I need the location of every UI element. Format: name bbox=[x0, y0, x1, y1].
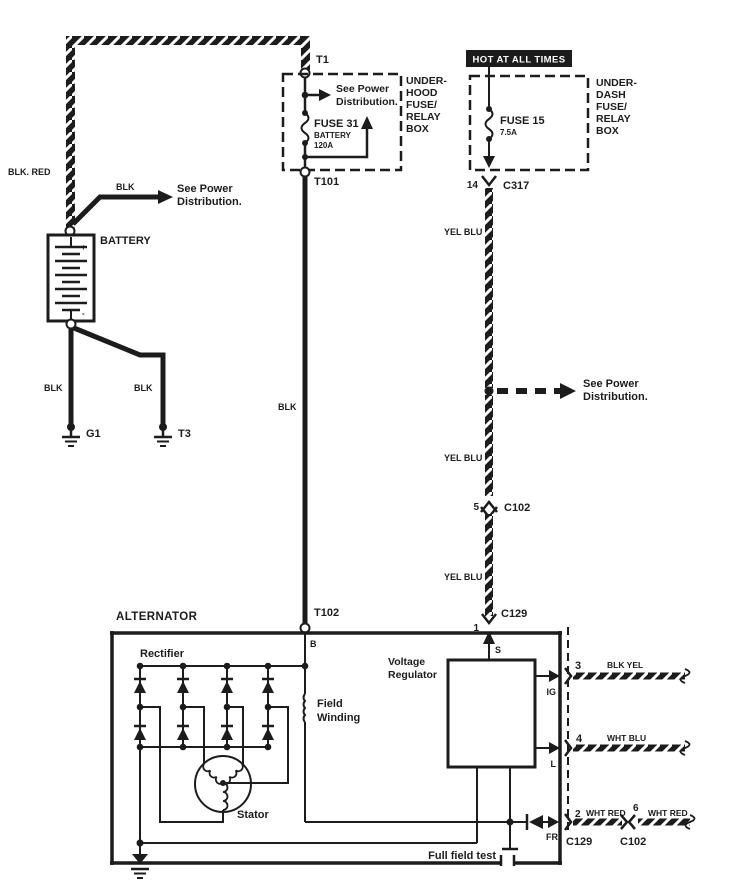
battery-neg-terminal bbox=[67, 320, 76, 329]
label-blk-t3: BLK bbox=[134, 383, 153, 393]
output-pigtails: 3 BLK YEL 4 WHT BLU 2 WHT RED C129 6 WHT… bbox=[565, 627, 695, 848]
svg-text:HOOD: HOOD bbox=[406, 87, 438, 99]
label-terminal-l: L bbox=[551, 759, 557, 769]
feed-wire-left bbox=[66, 36, 75, 232]
svg-text:BOX: BOX bbox=[596, 125, 619, 137]
underdash-box-name: UNDER- DASH FUSE/ RELAY BOX bbox=[596, 77, 637, 137]
diode-icon bbox=[529, 815, 543, 829]
svg-text:BOX: BOX bbox=[406, 123, 429, 135]
label-branch-blk: BLK bbox=[116, 182, 135, 192]
wire-blk-yel bbox=[573, 673, 685, 680]
label-t101: T101 bbox=[314, 176, 339, 188]
label-winding: Winding bbox=[317, 712, 360, 724]
arrow-up-icon bbox=[361, 116, 373, 129]
label-see-power-3a: See Power bbox=[583, 378, 639, 390]
yel-blu-wire-2 bbox=[485, 395, 493, 496]
label-pin-5: 5 bbox=[473, 502, 479, 513]
label-wht-blu: WHT BLU bbox=[607, 733, 646, 743]
svg-text:UNDER-: UNDER- bbox=[406, 75, 447, 87]
charging-system-diagram: BLK. RED BLK See Power Distribution. + -… bbox=[0, 0, 747, 887]
feed-wire-top bbox=[66, 36, 310, 45]
label-c102: C102 bbox=[504, 502, 530, 514]
battery-plus-mark: + bbox=[81, 243, 86, 252]
label-g1: G1 bbox=[86, 428, 101, 440]
label-see-power-2b: Distribution. bbox=[336, 96, 398, 108]
svg-text:RELAY: RELAY bbox=[406, 111, 441, 123]
feed-wire-t1-drop bbox=[301, 36, 310, 70]
terminal-t102 bbox=[301, 624, 310, 633]
arrow-right-icon bbox=[319, 89, 331, 101]
label-blk-g1: BLK bbox=[44, 383, 63, 393]
label-stator: Stator bbox=[237, 809, 270, 821]
label-blk-red: BLK. RED bbox=[8, 167, 51, 177]
label-fuse-31-rating: 120A bbox=[314, 141, 333, 150]
fuse-31-element bbox=[302, 113, 309, 143]
label-blk-yel: BLK YEL bbox=[607, 660, 643, 670]
connector-c317-icon bbox=[482, 176, 496, 185]
label-battery: BATTERY bbox=[100, 235, 151, 247]
battery-branch-wire bbox=[73, 197, 158, 224]
label-yel-blu-1: YEL BLU bbox=[444, 227, 482, 237]
field-winding-coil bbox=[304, 694, 305, 722]
underdash-fuse-box: HOT AT ALL TIMES FUSE 15 7.5A UNDER- DAS… bbox=[466, 50, 637, 192]
label-fuse-31-circuit: BATTERY bbox=[314, 131, 352, 140]
label-blk-center: BLK bbox=[278, 402, 297, 412]
ground-symbol-t3 bbox=[154, 423, 172, 446]
label-fuse-15-rating: 7.5A bbox=[500, 128, 517, 137]
svg-text:RELAY: RELAY bbox=[596, 113, 631, 125]
svg-text:FUSE/: FUSE/ bbox=[406, 99, 437, 111]
arrow-right-icon bbox=[548, 816, 559, 828]
arrow-right-icon bbox=[560, 383, 576, 399]
label-pin-14: 14 bbox=[467, 180, 479, 191]
wire-wht-red-a bbox=[573, 819, 622, 826]
label-yel-blu-2: YEL BLU bbox=[444, 453, 482, 463]
connector-pin3-icon bbox=[565, 668, 571, 684]
label-see-power-3b: Distribution. bbox=[583, 391, 648, 403]
fuse-15-element bbox=[486, 109, 493, 139]
fr-circuit: FR bbox=[305, 814, 559, 842]
voltage-regulator: Voltage Regulator S IG L bbox=[388, 631, 560, 849]
label-pin-6: 6 bbox=[633, 803, 639, 814]
label-fuse-15: FUSE 15 bbox=[500, 115, 545, 127]
label-terminal-s: S bbox=[495, 645, 501, 655]
label-voltage: Voltage bbox=[388, 656, 425, 668]
label-fuse-31: FUSE 31 bbox=[314, 118, 359, 130]
label-regulator: Regulator bbox=[388, 669, 437, 681]
connector-c102-out-icon-right bbox=[629, 815, 635, 829]
wire-wht-blu bbox=[573, 745, 685, 752]
label-terminal-b: B bbox=[310, 639, 317, 649]
label-c317: C317 bbox=[503, 180, 529, 192]
label-c129-out: C129 bbox=[566, 836, 592, 848]
label-t3: T3 bbox=[178, 428, 191, 440]
voltage-regulator-box bbox=[448, 660, 535, 767]
label-see-power-1b: Distribution. bbox=[177, 196, 242, 208]
label-pin-4: 4 bbox=[576, 733, 583, 745]
arrow-right-icon bbox=[158, 190, 173, 204]
ground-symbol-g1 bbox=[62, 423, 80, 446]
yel-blu-wire-3 bbox=[485, 514, 493, 616]
stator: Stator bbox=[195, 756, 270, 821]
label-terminal-ig: IG bbox=[546, 687, 556, 697]
wire-wht-red-b bbox=[638, 819, 690, 826]
svg-text:FUSE/: FUSE/ bbox=[596, 101, 627, 113]
label-wht-red-a: WHT RED bbox=[586, 808, 626, 818]
battery-section: BLK See Power Distribution. + - BATTERY … bbox=[44, 182, 242, 446]
label-hot-at-all-times: HOT AT ALL TIMES bbox=[473, 55, 566, 66]
alternator: ALTERNATOR B Field Winding Rectifier bbox=[110, 611, 562, 878]
stator-winding-upper-left bbox=[203, 764, 223, 784]
battery-minus-mark: - bbox=[82, 309, 85, 318]
label-field: Field bbox=[317, 698, 343, 710]
label-see-power-2a: See Power bbox=[336, 83, 389, 95]
label-c102-out: C102 bbox=[620, 836, 646, 848]
ground-wire-t3 bbox=[74, 328, 163, 424]
center-harness: BLK T102 bbox=[278, 177, 339, 633]
label-c129: C129 bbox=[501, 608, 527, 620]
stator-winding-bottom bbox=[223, 783, 228, 810]
label-yel-blu-3: YEL BLU bbox=[444, 572, 482, 582]
svg-text:DASH: DASH bbox=[596, 89, 626, 101]
label-t102: T102 bbox=[314, 607, 339, 619]
label-rectifier: Rectifier bbox=[140, 648, 185, 660]
underhood-box-name: UNDER- HOOD FUSE/ RELAY BOX bbox=[406, 75, 447, 135]
label-pin-2: 2 bbox=[575, 809, 581, 820]
yel-blu-wire-1 bbox=[485, 188, 493, 388]
label-wht-red-b: WHT RED bbox=[648, 808, 688, 818]
svg-text:UNDER-: UNDER- bbox=[596, 77, 637, 89]
label-see-power-1a: See Power bbox=[177, 183, 233, 195]
right-harness: YEL BLU See Power Distribution. YEL BLU … bbox=[444, 188, 648, 634]
underhood-fuse-box: T1 See Power Distribution. FUSE 31 BATTE… bbox=[283, 54, 447, 188]
arrow-down-icon bbox=[483, 156, 495, 168]
stator-wiring bbox=[140, 707, 288, 862]
ground-symbol-case bbox=[131, 840, 149, 879]
label-alternator: ALTERNATOR bbox=[116, 611, 198, 623]
label-full-field-test: Full field test bbox=[428, 850, 496, 862]
label-terminal-fr: FR bbox=[546, 832, 558, 842]
stator-winding-upper-right bbox=[223, 764, 243, 784]
label-t1: T1 bbox=[316, 54, 329, 66]
label-pin-3: 3 bbox=[575, 660, 581, 672]
terminal-t101 bbox=[301, 168, 310, 177]
wiring-diagram-page: BLK. RED BLK See Power Distribution. + -… bbox=[0, 0, 747, 887]
